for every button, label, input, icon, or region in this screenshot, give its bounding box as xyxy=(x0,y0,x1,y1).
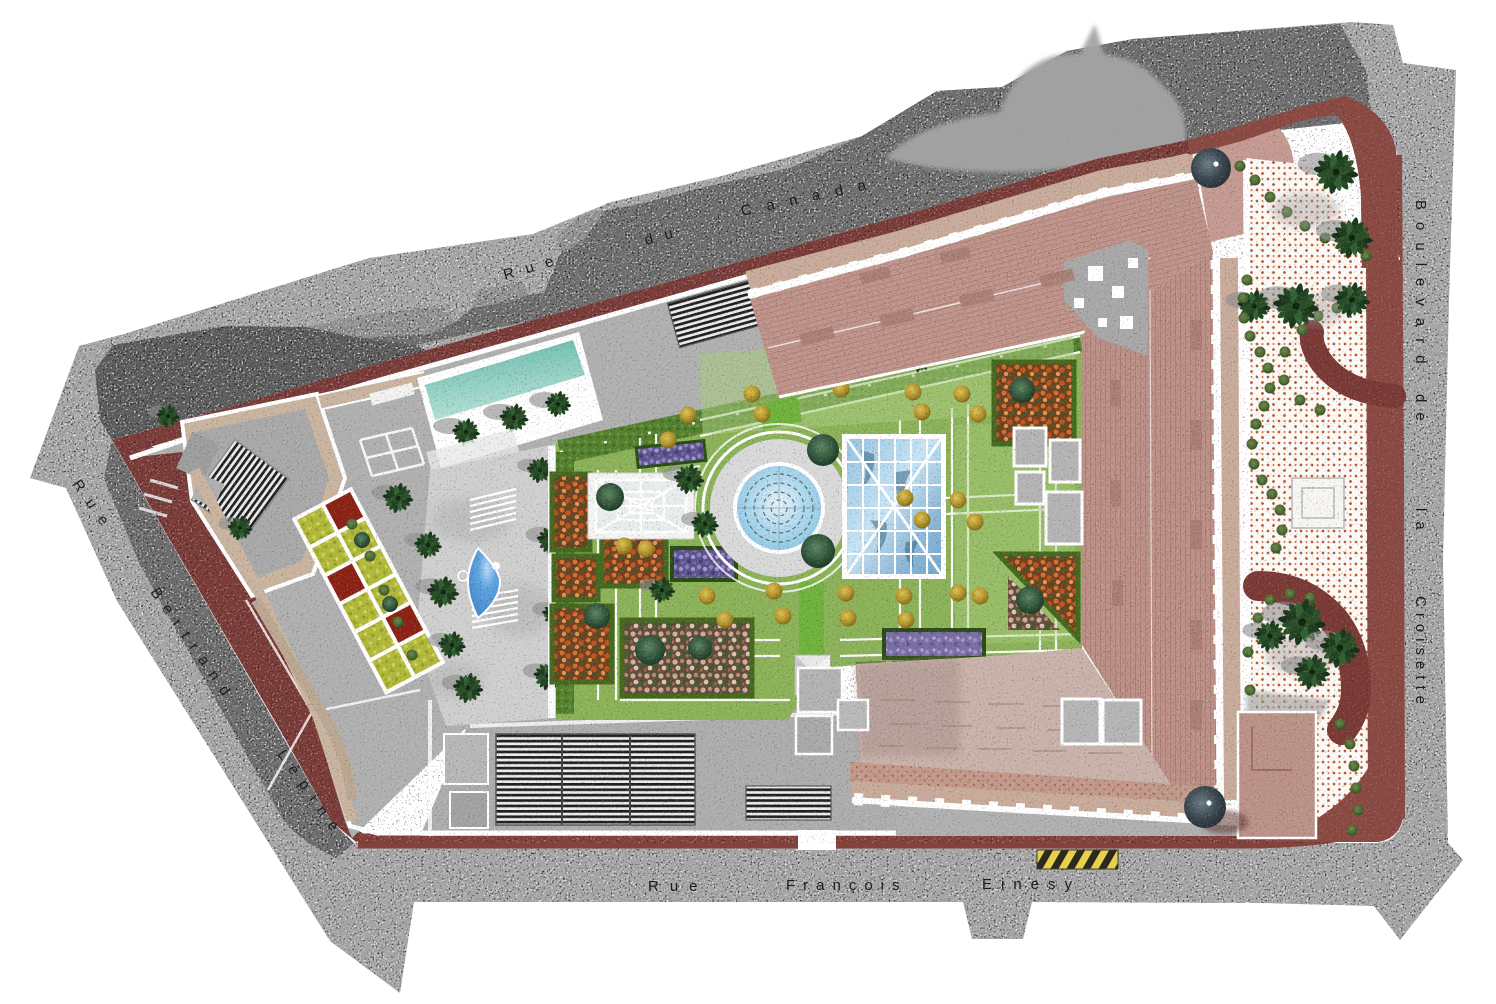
svg-text:de: de xyxy=(1412,394,1429,431)
svg-text:François: François xyxy=(786,877,908,894)
svg-text:Croisette: Croisette xyxy=(1412,596,1429,710)
svg-text:la: la xyxy=(1412,508,1429,540)
svg-text:Einesy: Einesy xyxy=(982,876,1081,893)
svg-text:Boulevard: Boulevard xyxy=(1412,200,1429,376)
svg-text:Rue: Rue xyxy=(648,878,709,895)
